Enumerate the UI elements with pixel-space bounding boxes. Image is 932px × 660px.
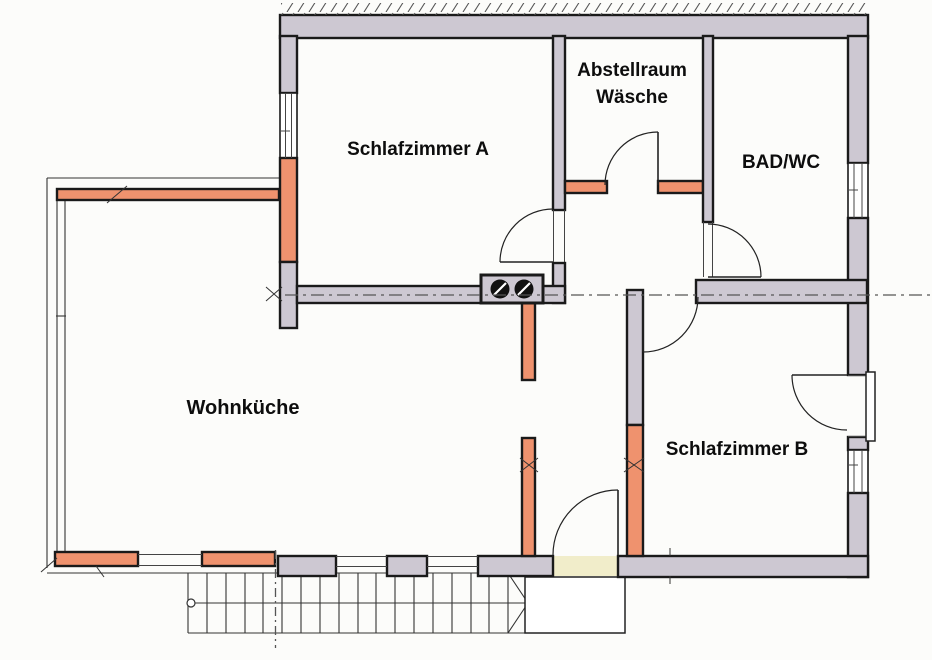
west-wall-upper (280, 36, 297, 93)
staircase (187, 573, 528, 633)
wall-storage-south-left (565, 181, 607, 193)
entrance-door (553, 490, 618, 555)
room-label-waesche: Wäsche (596, 87, 668, 108)
wall-bedroom-b-west-old (627, 290, 643, 425)
south-wall-bedroom-b (618, 556, 868, 577)
entrance-threshold (554, 556, 617, 576)
room-label-bad-wc: BAD/WC (742, 152, 820, 173)
floor-plan-drawing: Schlafzimmer A Abstellraum Wäsche BAD/WC… (0, 0, 932, 660)
north-wall (280, 15, 868, 38)
south-window-kitchen-2 (202, 552, 275, 566)
south-window-kitchen-1 (55, 552, 138, 566)
east-wall-pier (848, 437, 868, 450)
stair-walk-line-start (187, 599, 195, 607)
balcony-door (792, 372, 875, 441)
chimney-symbol (481, 275, 543, 303)
room-label-abstellraum: Abstellraum (577, 60, 687, 81)
wall-bath-south (696, 280, 867, 303)
entrance-vestibule (525, 577, 625, 633)
wall-bedroom-b-west-new (627, 425, 643, 556)
wall-storage-bath (703, 36, 713, 222)
south-wall-pier-2 (387, 556, 427, 576)
room-label-wohnkueche: Wohnküche (187, 397, 300, 419)
south-wall-pier-1 (278, 556, 336, 576)
hall-wall-stub-lower (522, 438, 535, 556)
room-label-schlafzimmer-b: Schlafzimmer B (666, 439, 809, 460)
south-wall-pier-3 (478, 556, 553, 576)
wall-storage-south-right (658, 181, 703, 193)
kitchen-north-wall-new (57, 189, 279, 200)
north-wall-hatching (281, 3, 867, 15)
balcony-door-panel (866, 372, 875, 441)
bedroom-b-door (643, 297, 698, 352)
room-label-schlafzimmer-a: Schlafzimmer A (347, 139, 489, 160)
bedroom-a-door (500, 209, 565, 262)
storage-room-door (605, 132, 658, 185)
hall-wall-stub-upper (522, 303, 535, 380)
east-wall-upper (848, 36, 868, 163)
west-wall-window (280, 93, 297, 158)
west-wall-new-section (280, 158, 297, 262)
interior-walls (297, 36, 867, 556)
wall-bedroom-a-storage (553, 36, 565, 210)
floor-plan-page: Schlafzimmer A Abstellraum Wäsche BAD/WC… (0, 0, 932, 660)
bathroom-door (704, 222, 762, 277)
east-wall-window-bedroom-b (848, 450, 868, 493)
